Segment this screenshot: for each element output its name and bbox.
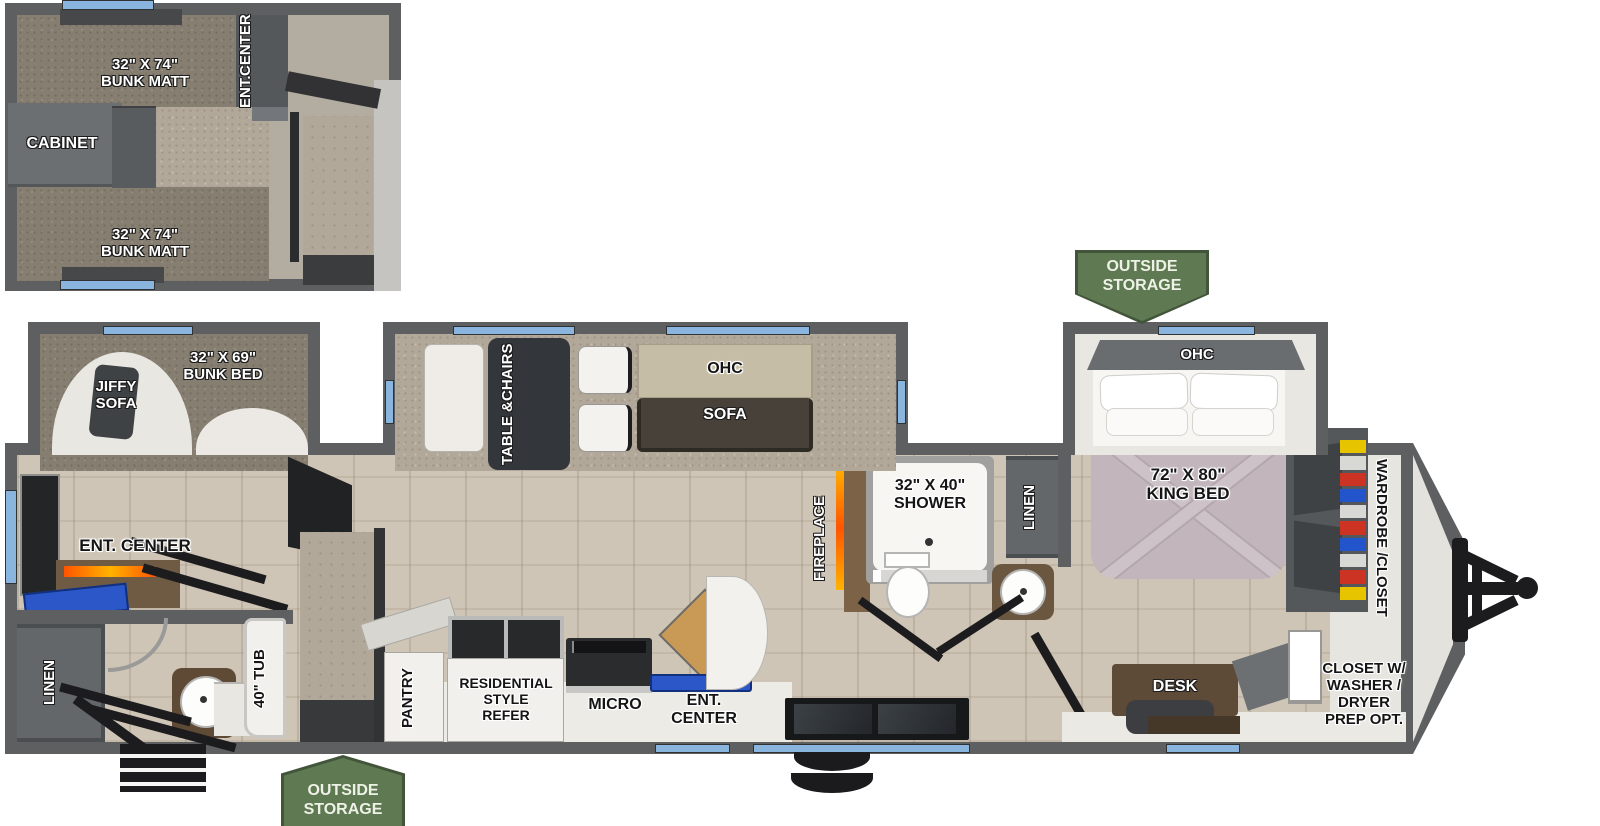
rv-floorplan: 32" X 74"BUNK MATT 32" X 74"BUNK MATT EN… [0, 0, 1600, 826]
loft-window-top [62, 0, 154, 10]
hitch-arm-top [1462, 551, 1519, 586]
jiffy-sofa-label: JIFFYSOFA [78, 374, 154, 418]
rear-tv [20, 474, 60, 596]
bath-linen-label: LINEN [1022, 468, 1039, 548]
pillow-left-2 [1106, 408, 1188, 436]
bath-sink-drain [1020, 588, 1027, 595]
center-carpet-transition [395, 455, 896, 471]
main-stair-landing [300, 700, 374, 742]
loft-bunk-bottom-label: 32" X 74"BUNK MATT [75, 218, 215, 270]
dinette-bench [424, 344, 484, 452]
rear-sink-drain [200, 696, 207, 703]
rear-entry-steps [120, 744, 206, 792]
shower-label: 32" X 40"SHOWER [878, 470, 982, 520]
loft-bunk-top-label: 32" X 74"BUNK MATT [75, 48, 215, 100]
refer-door-left [452, 620, 504, 660]
rear-linen-label: LINEN [42, 640, 59, 726]
window-rear-wall [5, 490, 17, 584]
loft-cabinet-label: CABINET [12, 135, 112, 153]
fireplace-label: FIREPLACE [812, 472, 829, 604]
desk-drawer [1148, 716, 1240, 734]
hitch-jack [1472, 560, 1482, 618]
micro-label: MICRO [578, 696, 652, 714]
closet-washer-label: CLOSET W/WASHER / DRYERPREP OPT. [1314, 650, 1414, 740]
shower-drain [925, 538, 933, 546]
center-slide-window-right [897, 380, 906, 424]
loft-stair-sidewall [374, 80, 401, 291]
outside-storage-front-label: OUTSIDESTORAGE [1075, 256, 1209, 296]
patio-door-glass-right [878, 704, 956, 734]
bath-bedroom-wall [1058, 455, 1071, 567]
king-bed-label: 72" X 80"KING BED [1108, 458, 1268, 510]
left-slide-window [103, 326, 193, 335]
loft-cabinet-drawers [112, 106, 156, 188]
bedroom-ohc-label: OHC [1162, 347, 1232, 364]
hitch-ball [1516, 577, 1538, 599]
refer-door-right [508, 620, 560, 660]
outside-storage-rear-label: OUTSIDESTORAGE [281, 779, 405, 821]
pillow-right-2 [1192, 408, 1274, 436]
hitch-arm-bottom [1462, 595, 1519, 630]
range-knobs [572, 641, 646, 653]
range-handle [566, 686, 652, 693]
table-chairs-label: TABLE &CHAIRS [500, 348, 517, 460]
bunk-bed-label: 32" X 69"BUNK BED [168, 344, 278, 390]
entry-step-outside-1 [794, 752, 870, 771]
outside-storage-front-badge: OUTSIDESTORAGE [1075, 250, 1209, 324]
refer-label: RESIDENTIALSTYLEREFER [452, 664, 560, 736]
entry-step-outside-2 [791, 773, 873, 793]
rear-ent-center-label: ENT. CENTER [75, 536, 195, 555]
pantry-label: PANTRY [400, 662, 417, 734]
loft-stair-railing [290, 112, 299, 262]
fireplace-flame-strip [836, 466, 844, 590]
bedroom-slide-window [1158, 326, 1255, 335]
dinette-chair-2 [578, 404, 632, 452]
loft-window-bottom [60, 280, 155, 290]
loft-stair-landing [303, 255, 374, 285]
center-slide-window-1 [453, 326, 575, 335]
center-slide-window-2 [666, 326, 810, 335]
wardrobe-shelf-bottom [1294, 521, 1342, 594]
pillow-right [1189, 372, 1278, 411]
loft-ent-center-label: ENT.CENTER [238, 18, 286, 104]
loft-stairs [303, 116, 373, 258]
sofa-label: SOFA [692, 406, 758, 424]
toilet-bowl [886, 566, 930, 618]
window-bottom-3 [1166, 744, 1240, 753]
window-bottom-1 [655, 744, 730, 753]
loft-ent-center-base [252, 107, 288, 121]
patio-door-glass-left [794, 704, 872, 734]
rear-tub-label: 40" TUB [252, 636, 269, 722]
dinette-chair-1 [578, 346, 632, 394]
center-slide-window-left [385, 380, 394, 424]
loft-bunk-top-headboard [60, 9, 182, 25]
kitchen-ent-center-label: ENT.CENTER [660, 688, 748, 732]
wardrobe-closet-label: WARDROBE /CLOSET [1372, 448, 1389, 628]
hanging-clothes [1340, 440, 1366, 600]
rear-carpet-transition [40, 455, 308, 471]
outside-storage-rear-badge: OUTSIDESTORAGE [281, 755, 405, 826]
desk-label: DESK [1130, 678, 1220, 696]
living-ohc-label: OHC [690, 360, 760, 378]
pillow-left [1099, 372, 1188, 411]
